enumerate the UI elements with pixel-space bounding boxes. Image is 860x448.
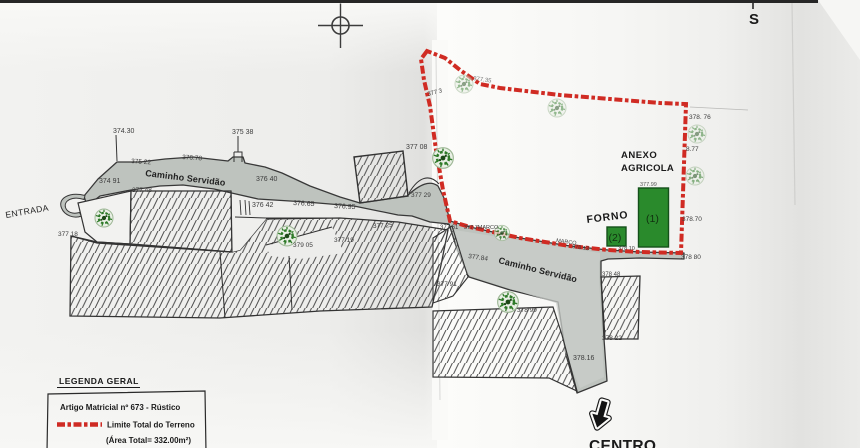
svg-text:LEGENDA GERAL: LEGENDA GERAL bbox=[59, 376, 139, 386]
svg-text:377.99: 377.99 bbox=[640, 182, 657, 188]
svg-text:(2): (2) bbox=[609, 232, 622, 244]
svg-text:377 61: 377 61 bbox=[440, 225, 459, 231]
svg-text:ANEXO: ANEXO bbox=[621, 150, 657, 161]
svg-text:Artigo Matricial nº 673 - Rúst: Artigo Matricial nº 673 - Rústico bbox=[60, 403, 180, 412]
svg-text:(1): (1) bbox=[646, 213, 659, 225]
svg-text:CENTRO: CENTRO bbox=[589, 438, 656, 448]
svg-text:377 48: 377 48 bbox=[132, 187, 152, 194]
svg-text:378 22: 378 22 bbox=[602, 335, 622, 342]
svg-text:379 05: 379 05 bbox=[293, 242, 313, 249]
svg-text:377 08: 377 08 bbox=[406, 144, 428, 151]
svg-text:377 25: 377 25 bbox=[373, 222, 394, 230]
svg-text:378 48: 378 48 bbox=[602, 272, 621, 278]
svg-text:377 7MARCO: 377 7MARCO bbox=[464, 225, 499, 231]
svg-text:AGRICOLA: AGRICOLA bbox=[621, 163, 674, 174]
svg-text:374.30: 374.30 bbox=[113, 128, 135, 135]
svg-text:375 38: 375 38 bbox=[232, 129, 254, 136]
svg-text:377 19: 377 19 bbox=[334, 237, 354, 244]
svg-text:376.78: 376.78 bbox=[182, 154, 203, 162]
svg-text:378 10: 378 10 bbox=[618, 246, 635, 252]
svg-text:378 80: 378 80 bbox=[681, 254, 701, 261]
svg-text:377 18: 377 18 bbox=[58, 231, 78, 238]
svg-text:Limite Total do Terreno: Limite Total do Terreno bbox=[107, 421, 195, 430]
svg-text:377 29: 377 29 bbox=[411, 192, 431, 199]
svg-text:377 91: 377 91 bbox=[437, 281, 457, 288]
svg-text:378.16: 378.16 bbox=[573, 355, 595, 362]
svg-text:8.77: 8.77 bbox=[686, 146, 699, 153]
svg-text:376 40: 376 40 bbox=[256, 176, 278, 183]
svg-text:378 99: 378 99 bbox=[517, 307, 537, 314]
svg-text:378. 76: 378. 76 bbox=[689, 114, 711, 121]
svg-text:376 42: 376 42 bbox=[252, 202, 274, 209]
svg-text:378.70: 378.70 bbox=[682, 216, 702, 223]
svg-text:376.95: 376.95 bbox=[334, 203, 356, 211]
svg-text:374 91: 374 91 bbox=[99, 178, 121, 185]
svg-text:S: S bbox=[749, 11, 759, 28]
svg-text:(Área Total= 332.00m²): (Área Total= 332.00m²) bbox=[106, 436, 191, 445]
svg-text:375 22: 375 22 bbox=[131, 158, 152, 166]
svg-text:376.65: 376.65 bbox=[293, 200, 315, 208]
